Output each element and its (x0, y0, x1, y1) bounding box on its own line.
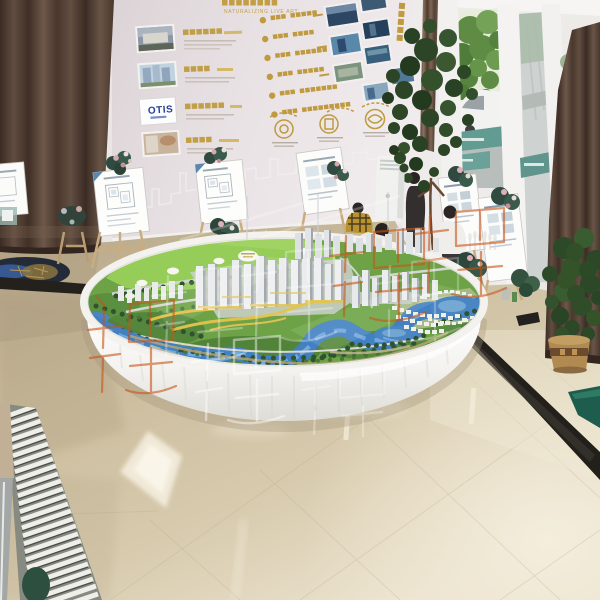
svg-text:OTIS: OTIS (148, 104, 174, 117)
svg-text:NATURALIZING LIVE ART: NATURALIZING LIVE ART (224, 9, 298, 15)
